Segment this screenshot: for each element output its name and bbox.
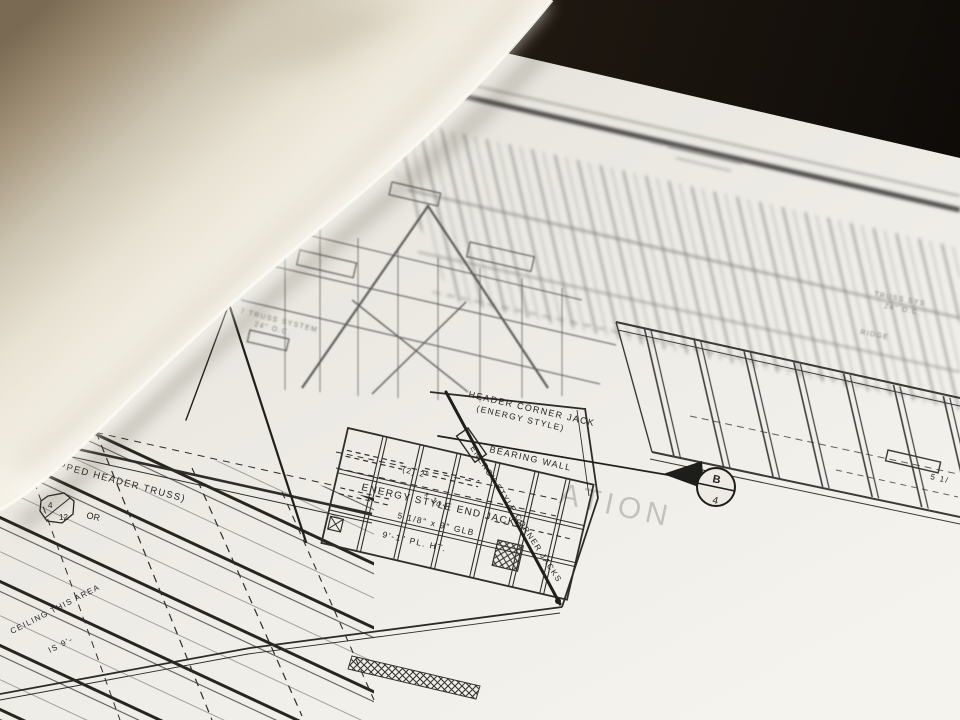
hatched-wall-square bbox=[492, 540, 523, 571]
photo-of-blueprints: ATION B 4 4 12 OR (STEPPED HEADER TRUSS)… bbox=[0, 0, 960, 720]
pitch-run: 12 bbox=[59, 513, 68, 522]
blueprint-photo-canvas: ATION B 4 4 12 OR (STEPPED HEADER TRUSS)… bbox=[0, 0, 960, 720]
